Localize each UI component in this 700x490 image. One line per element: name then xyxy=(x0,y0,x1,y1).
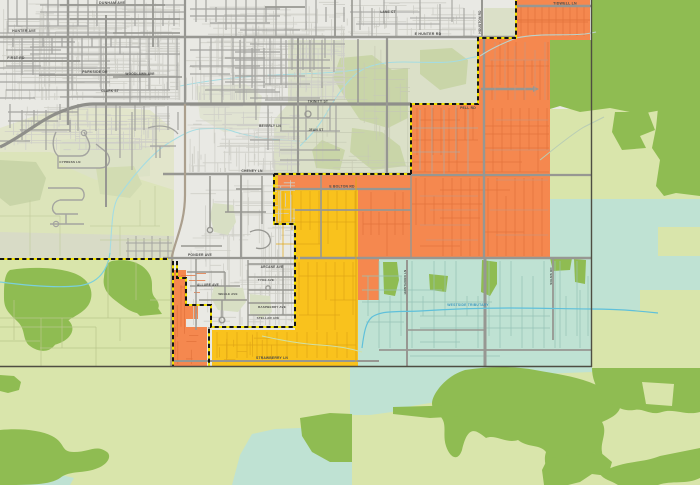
svg-text:STELLAR AVE: STELLAR AVE xyxy=(257,316,280,320)
svg-text:PARKSIDE DR: PARKSIDE DR xyxy=(82,70,108,74)
svg-text:JEAN ST: JEAN ST xyxy=(309,128,324,132)
svg-text:WESTSIDE TRIBUTARY: WESTSIDE TRIBUTARY xyxy=(447,303,489,307)
svg-text:ALLURE AVE: ALLURE AVE xyxy=(197,283,219,287)
svg-text:BEVERLY LN: BEVERLY LN xyxy=(259,124,281,128)
svg-text:WEHLE AVE: WEHLE AVE xyxy=(218,292,237,296)
svg-text:PELL RD: PELL RD xyxy=(460,106,476,110)
svg-text:CLARK ST: CLARK ST xyxy=(101,89,119,93)
svg-text:TRINITY ST: TRINITY ST xyxy=(308,100,329,104)
svg-text:STRAWBERRY LN: STRAWBERRY LN xyxy=(256,356,288,360)
svg-text:CHENEY LN: CHENEY LN xyxy=(241,169,263,173)
svg-text:LANE CT: LANE CT xyxy=(380,10,395,14)
svg-text:FIRST RD: FIRST RD xyxy=(7,56,25,60)
svg-text:TYKE AVE: TYKE AVE xyxy=(258,278,274,282)
svg-text:WOODLAWN AVE: WOODLAWN AVE xyxy=(125,72,154,76)
svg-text:ARCANE AVE: ARCANE AVE xyxy=(261,265,284,269)
svg-text:CYPRESS LN: CYPRESS LN xyxy=(59,160,80,164)
svg-text:SOLMS RD: SOLMS RD xyxy=(549,267,553,285)
svg-text:RASPBERRY AVE: RASPBERRY AVE xyxy=(258,305,286,309)
svg-text:TIDWELL LN: TIDWELL LN xyxy=(553,2,577,6)
svg-text:E BOLTON RD: E BOLTON RD xyxy=(329,185,355,189)
svg-text:HUNTER AVE: HUNTER AVE xyxy=(12,29,36,33)
svg-text:DUNHAM AVE: DUNHAM AVE xyxy=(99,1,125,5)
svg-text:HAWTHORN LN: HAWTHORN LN xyxy=(403,270,407,295)
svg-text:E HUNTER RD: E HUNTER RD xyxy=(415,32,442,36)
svg-text:HOUSTON RD: HOUSTON RD xyxy=(478,10,482,34)
svg-text:PONDER AVE: PONDER AVE xyxy=(188,253,213,257)
